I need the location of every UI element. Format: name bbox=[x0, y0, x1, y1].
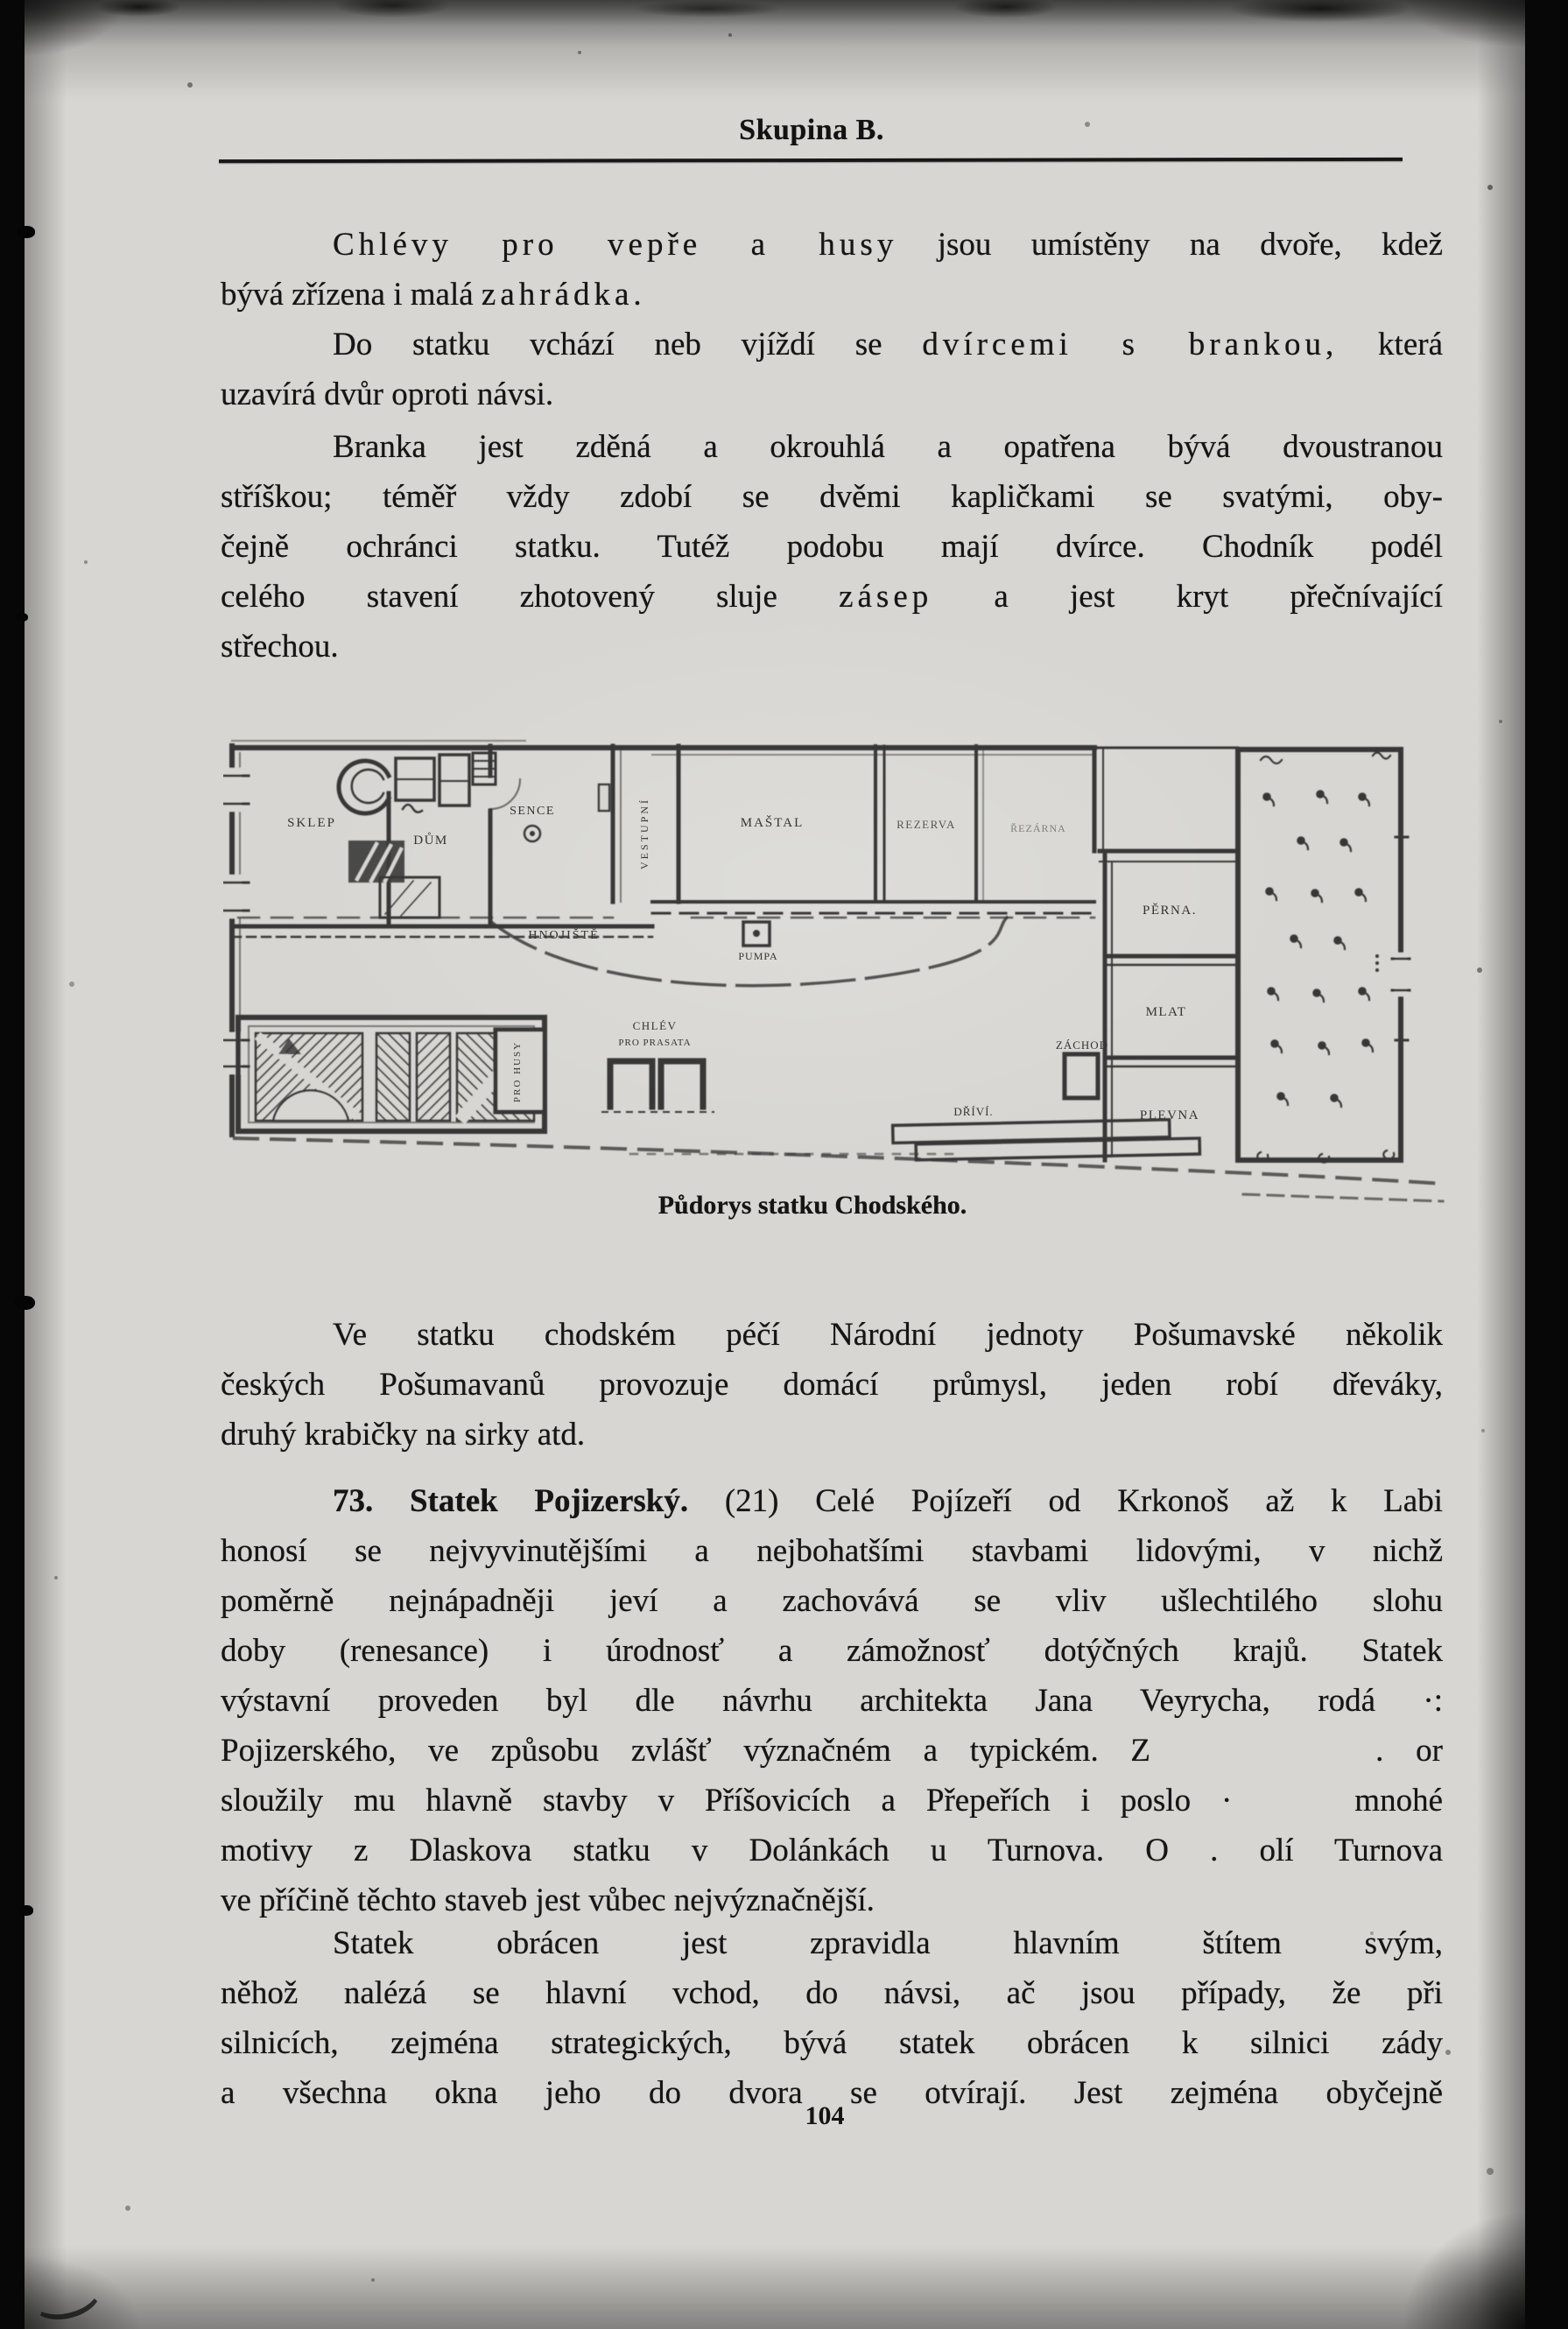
text-line: Ve statku chodském péčí Národní jednoty … bbox=[221, 1310, 1443, 1360]
text-segment: celého stavení zhotovený sluje bbox=[221, 579, 839, 615]
scan-artifact bbox=[19, 1905, 33, 1916]
room-label-vestupni: VESTUPNÍ bbox=[638, 798, 650, 869]
room-label-rezarna: ŘEZÁRNA bbox=[1010, 822, 1066, 834]
paragraph-3: Branka jest zděná a okrouhlá a opatřena … bbox=[221, 422, 1443, 672]
paragraph-4: Ve statku chodském péčí Národní jednoty … bbox=[221, 1310, 1443, 1460]
label-pro-husy: PRO HUSY bbox=[512, 1041, 523, 1102]
scan-artifact-top bbox=[25, 0, 1525, 105]
text-line: Chlévy pro vepře a husy jsou umístěny na… bbox=[221, 220, 1443, 270]
text-line: honosí se nejvyvinutějšími a nejbohatším… bbox=[221, 1526, 1443, 1576]
text-line: poměrně nejnápadněji jeví a zachovává se… bbox=[221, 1576, 1443, 1626]
room-label-perna: PĚRNA. bbox=[1143, 903, 1197, 918]
text-line: 73. Statek Pojizerský. (21) Celé Pojízeř… bbox=[221, 1476, 1443, 1526]
text-line: sloužily mu hlavně stavby v Příšovicích … bbox=[221, 1776, 1443, 1826]
room-label-mastal: MAŠTAL bbox=[741, 815, 804, 830]
paragraph-2: Do statku vchází neb vjíždí se dvírcemi … bbox=[221, 320, 1443, 419]
text-line: celého stavení zhotovený sluje zásep a j… bbox=[221, 572, 1443, 622]
scan-speckles bbox=[0, 0, 4, 4]
text-line: druhý krabičky na sirky atd. bbox=[221, 1410, 1443, 1460]
scan-border-left bbox=[0, 0, 25, 2329]
paragraph-5: 73. Statek Pojizerský. (21) Celé Pojízeř… bbox=[221, 1476, 1443, 1925]
text-line: Statek obrácen jest zpravidla hlavním št… bbox=[221, 1918, 1443, 1968]
label-zachod: ZÁCHOD bbox=[1056, 1038, 1108, 1052]
label-drivi: DŘÍVÍ. bbox=[953, 1105, 993, 1118]
text-segment: (21) Celé Pojízeří od Krkonoš až k Labi bbox=[688, 1483, 1443, 1519]
text-segment: Do statku vchází neb vjíždí se bbox=[333, 327, 922, 362]
text-line: čejně ochránci statku. Tutéž podobu mají… bbox=[221, 522, 1443, 572]
floorplan-figure: SKLEP DŮM SENCE VESTUPNÍ MAŠTAL REZERVA … bbox=[223, 734, 1458, 1207]
text-line: střechou. bbox=[221, 622, 1443, 672]
floorplan-walls bbox=[223, 741, 1443, 1201]
text-line: českých Pošumavanů provozuje domácí prům… bbox=[221, 1360, 1443, 1410]
text-line: silnicích, zejména strategických, bývá s… bbox=[221, 2018, 1443, 2068]
scan-artifact bbox=[18, 226, 35, 238]
text-line: doby (renesance) i úrodnosť a zámožnosť … bbox=[221, 1626, 1443, 1676]
text-line: stříškou; téměř vždy zdobí se dvěmi kapl… bbox=[221, 472, 1443, 522]
text-line: něhož nalézá se hlavní vchod, do návsi, … bbox=[221, 1968, 1443, 2018]
room-label-mlat: MLAT bbox=[1146, 1005, 1187, 1019]
room-label-sklep: SKLEP bbox=[287, 816, 336, 830]
scan-artifact bbox=[14, 1296, 35, 1310]
page-header: Skupina B. bbox=[221, 114, 1403, 147]
label-pumpa: PUMPA bbox=[738, 950, 777, 962]
section-title: 73. Statek Pojizerský. bbox=[333, 1483, 688, 1519]
area-label-hnojiste: HNOJIŠTĚ bbox=[528, 927, 599, 942]
text-segment: která bbox=[1338, 327, 1443, 362]
label-chlev-line2: PRO PRASATA bbox=[618, 1038, 691, 1048]
room-label-rezerva: REZERVA bbox=[897, 818, 956, 831]
text-line: výstavní proveden byl dle návrhu archite… bbox=[221, 1676, 1443, 1726]
paragraph-1: Chlévy pro vepře a husy jsou umístěny na… bbox=[221, 220, 1443, 320]
text-line: Pojizerského, ve způsobu zvlášť význačné… bbox=[221, 1726, 1443, 1776]
room-label-plevna: PLEVNA bbox=[1140, 1108, 1199, 1122]
scanned-book-page: Skupina B. Chlévy pro vepře a husy jsou … bbox=[0, 0, 1568, 2329]
text-line: Do statku vchází neb vjíždí se dvírcemi … bbox=[221, 320, 1443, 369]
text-segment: dvírcemi s brankou, bbox=[922, 327, 1338, 362]
text-segment: zásep bbox=[839, 579, 932, 615]
text-segment: jsou umístěny na dvoře, kdež bbox=[897, 227, 1443, 263]
paragraph-6: Statek obrácen jest zpravidla hlavním št… bbox=[221, 1918, 1443, 2118]
text-line: bývá zřízena i malá zahrádka. bbox=[221, 270, 1443, 320]
text-segment: zahrádka. bbox=[482, 277, 646, 313]
text-segment: a jest kryt přečnívající bbox=[932, 579, 1443, 615]
room-label-dum: DŮM bbox=[413, 832, 448, 848]
text-line: uzavírá dvůr oproti návsi. bbox=[221, 369, 1443, 419]
text-segment: bývá zřízena i malá bbox=[221, 277, 482, 313]
page-number: 104 bbox=[221, 2101, 1429, 2131]
figure-caption: Půdorys statku Chodského. bbox=[221, 1191, 1404, 1221]
room-label-sence: SENCE bbox=[510, 805, 555, 818]
text-segment: Chlévy pro vepře a husy bbox=[333, 227, 897, 263]
label-chlev-line1: CHLÉV bbox=[633, 1019, 678, 1032]
scan-border-right bbox=[1525, 0, 1568, 2329]
text-line: Branka jest zděná a okrouhlá a opatřena … bbox=[221, 422, 1443, 472]
text-line: motivy z Dlaskova statku v Dolánkách u T… bbox=[221, 1826, 1443, 1875]
scan-artifact bbox=[16, 613, 28, 622]
